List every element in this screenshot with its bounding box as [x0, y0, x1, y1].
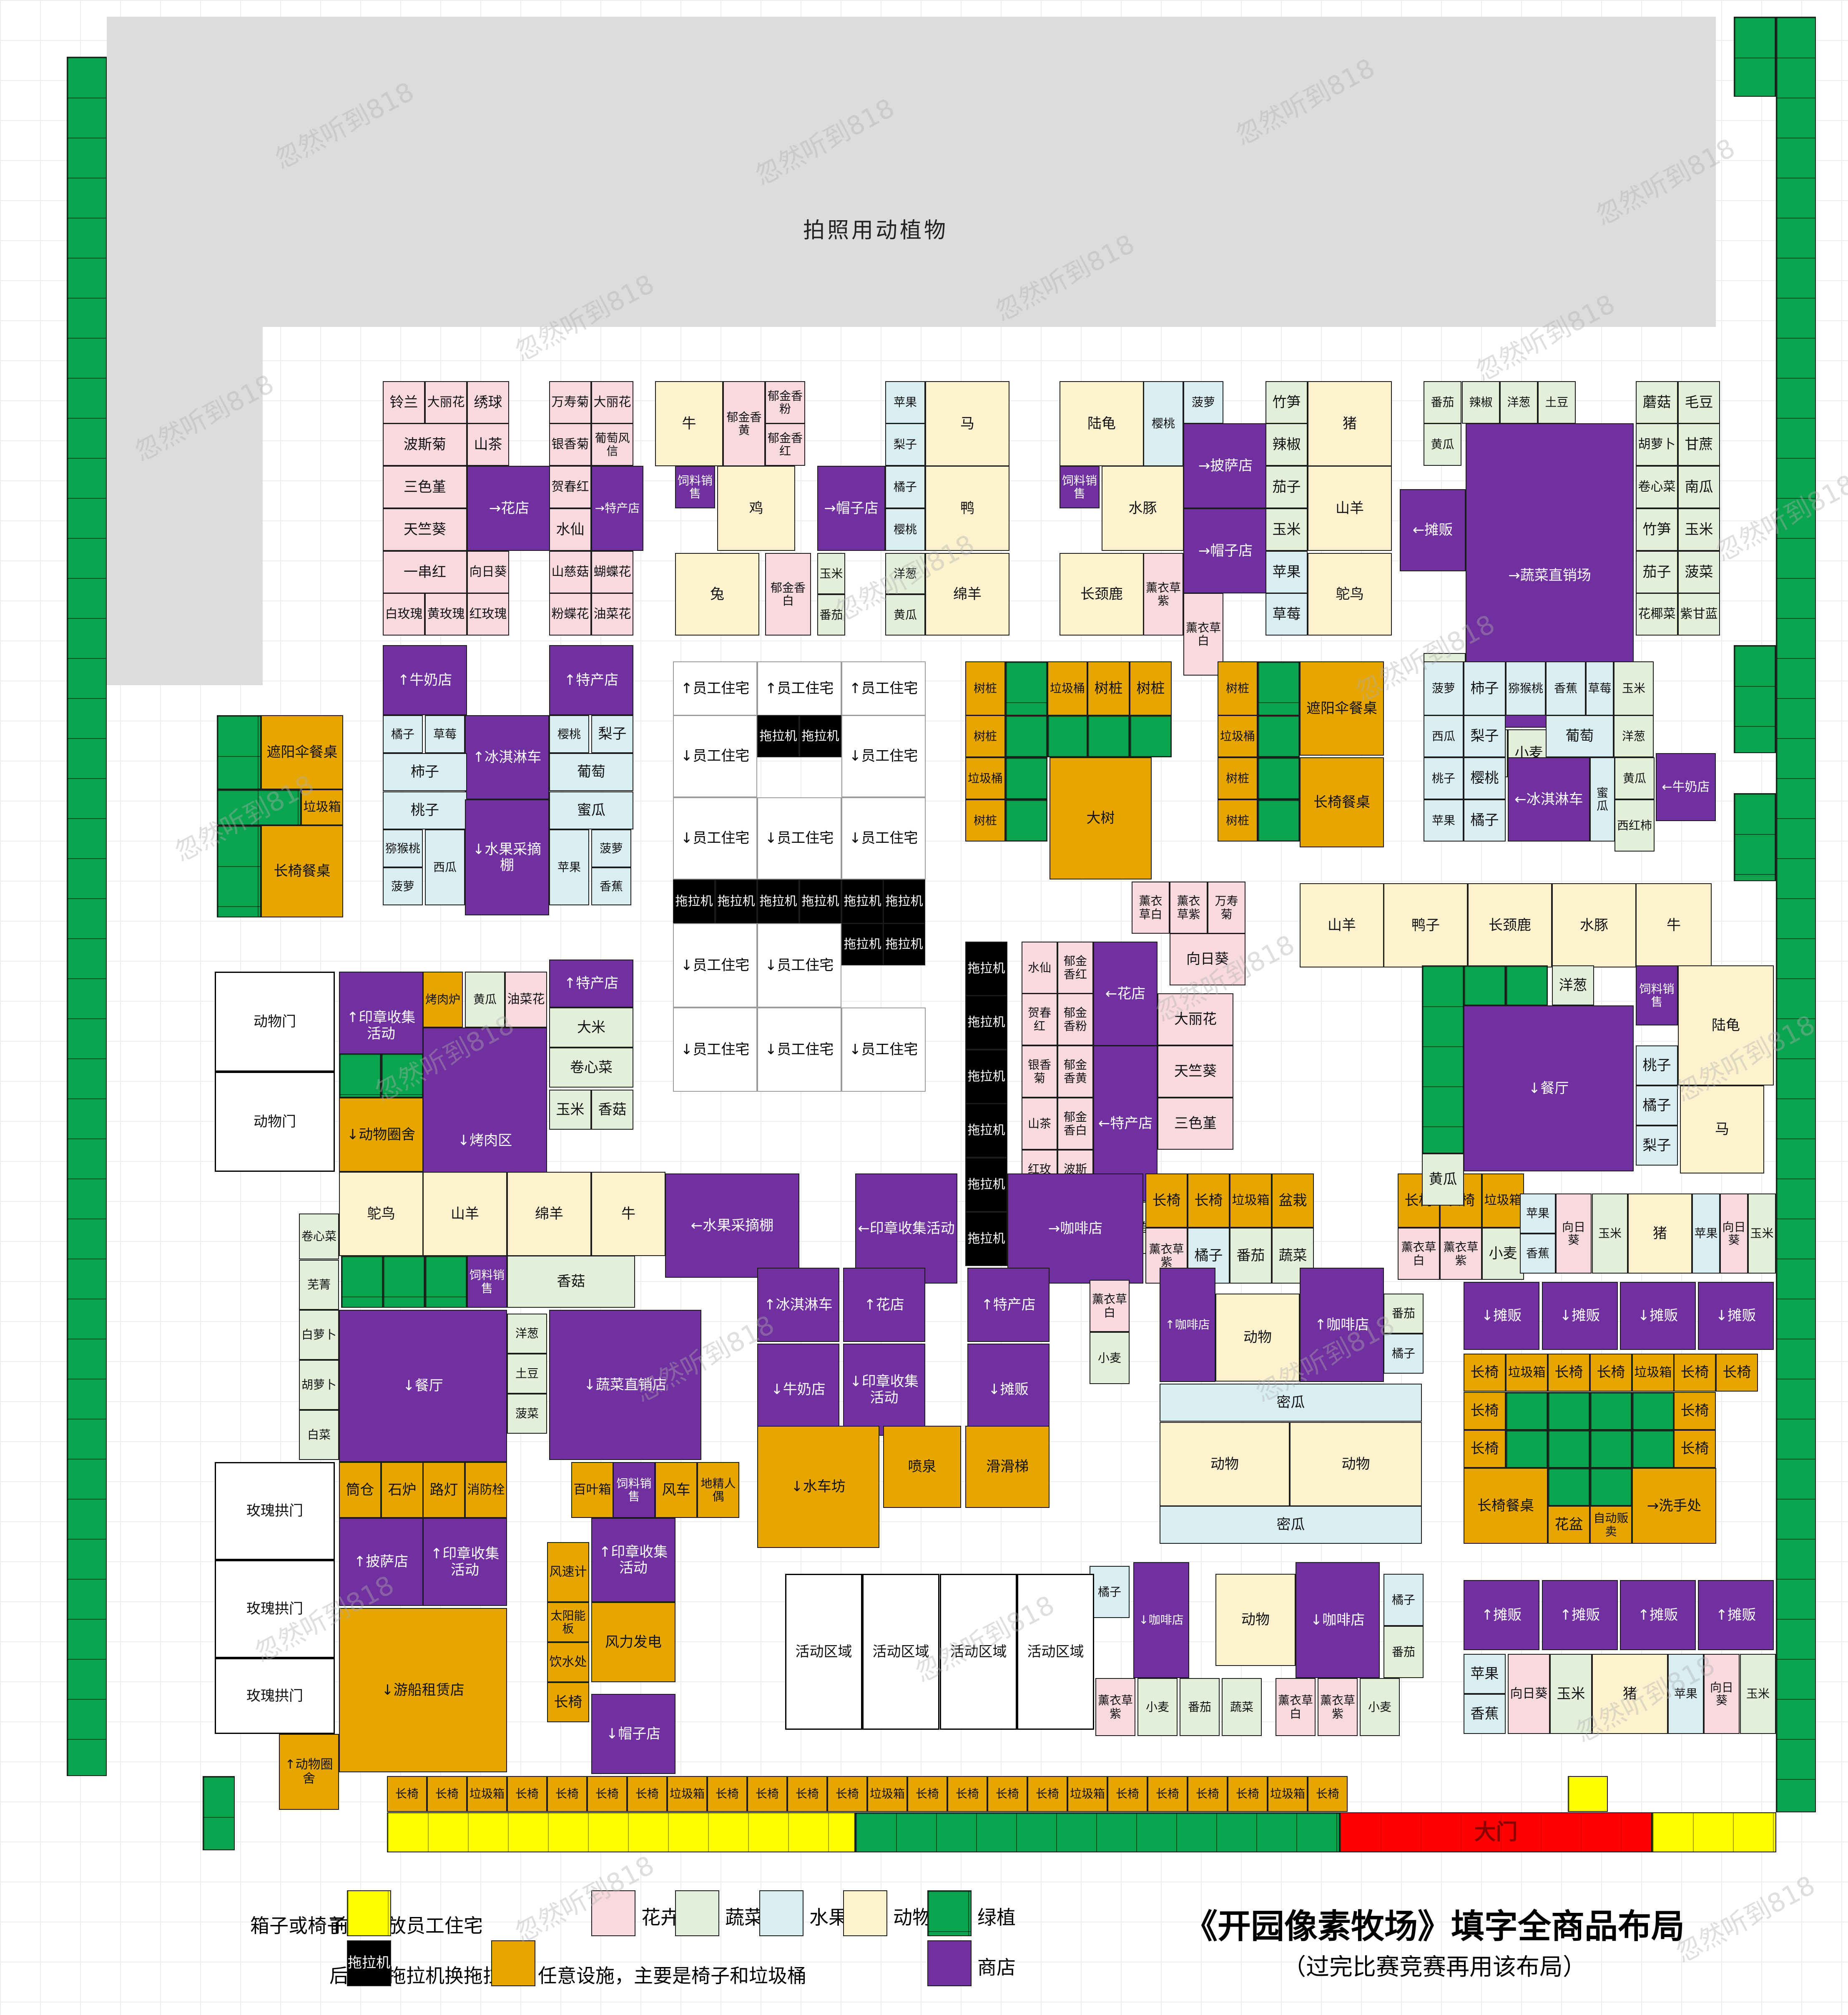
bench-cell: 长椅 [787, 1776, 827, 1812]
vegetable-cell: 黄瓜 [1422, 1153, 1464, 1206]
shop-cell: ↑摊贩 [1542, 1580, 1618, 1650]
vegetable-cell: 洋葱 [1500, 381, 1538, 424]
map-title: 《开园像素牧场》填字全商品布局 [1092, 1899, 1776, 1948]
greenery-cell [1632, 1392, 1674, 1430]
watermark: 忽然听到818 [507, 1844, 660, 1949]
flower-cell: 郁金香红 [1057, 942, 1093, 994]
bench-cell: 长椅 [707, 1776, 747, 1812]
flower-cell: 大丽花 [1158, 993, 1233, 1045]
vegetable-cell: 辣椒 [1462, 381, 1500, 424]
fruit-cell: 橘子 [1383, 1574, 1424, 1626]
tractor-cell: 拖拉机 [841, 923, 884, 965]
shop-cell: ↓摊贩 [1698, 1282, 1774, 1350]
vegetable-cell: 茄子 [1636, 551, 1678, 593]
facility-cell: 树桩 [1218, 757, 1258, 799]
fruit-cell: 葡萄 [1546, 715, 1614, 757]
fruit-cell: 苹果 [1668, 1654, 1704, 1734]
vegetable-cell: 洋葱 [885, 553, 925, 594]
fruit-cell: 苹果 [1464, 1654, 1506, 1694]
bench-cell: 长椅 [427, 1776, 467, 1812]
tractor-cell: 拖拉机 [965, 1050, 1007, 1104]
gate-cell: 大门 [1340, 1812, 1652, 1852]
fruit-cell: 桃子 [1636, 1045, 1678, 1085]
vegetable-cell: 玉米 [1740, 1654, 1776, 1734]
vegetable-cell: 香菇 [591, 1090, 633, 1130]
flower-cell: 天竺葵 [1158, 1045, 1233, 1098]
shop-cell: ↓摊贩 [967, 1344, 1050, 1436]
area-cell: 动物门 [215, 972, 335, 1072]
bench-cell: 长椅 [1308, 1776, 1348, 1812]
legend-swatch-flower-cell [591, 1890, 635, 1936]
animal-cell: 陆龟 [1060, 381, 1144, 466]
animal-cell: 马 [925, 381, 1009, 466]
vegetable-cell: 玉米 [1748, 1193, 1776, 1274]
vegetable-cell: 玉米 [1265, 508, 1308, 551]
animal-cell: 长颈鹿 [1060, 553, 1144, 636]
facility-cell: 垃圾桶 [965, 757, 1005, 799]
facility-cell: 长椅 [1145, 1173, 1188, 1228]
area-cell: 活动区域 [1017, 1574, 1094, 1730]
shop-cell: ↑摊贩 [1620, 1580, 1696, 1650]
tractor-cell: 拖拉机 [883, 879, 925, 924]
greenery-cell [1590, 1430, 1632, 1468]
bench-cell: 长椅 [627, 1776, 667, 1812]
vegetable-cell: 茄子 [1265, 466, 1308, 508]
animal-cell: 水豚 [1102, 466, 1184, 551]
shop-cell: ←水果采摘棚 [665, 1173, 799, 1278]
housing-cell: ↓员工住宅 [673, 1008, 757, 1092]
facility-cell: 大树 [1050, 757, 1152, 879]
shop-cell: ↑冰淇淋车 [465, 715, 549, 799]
fruit-cell: 苹果 [549, 829, 589, 905]
vegetable-cell: 土豆 [1538, 381, 1576, 424]
tractor-cell: 拖拉机 [965, 995, 1007, 1050]
facility-cell: 垃圾箱 [1506, 1354, 1548, 1392]
animal-cell: 牛 [1636, 883, 1712, 967]
trashbin-cell: 垃圾箱 [467, 1776, 507, 1812]
housing-cell: ↓员工住宅 [841, 715, 926, 797]
fruit-cell: 草莓 [425, 715, 465, 753]
fruit-cell: 苹果 [1265, 551, 1308, 593]
facility-cell: 饮水处 [547, 1642, 589, 1682]
vegetable-cell: 辣椒 [1265, 423, 1308, 466]
fruit-cell: 香蕉 [591, 867, 631, 905]
facility-cell: 遮阳伞餐桌 [1300, 661, 1384, 756]
area-cell: 活动区域 [940, 1574, 1017, 1730]
greenery-border [203, 1776, 235, 1850]
shop-cell: 饲料销售 [1060, 466, 1100, 508]
animal-cell: 猪 [1308, 381, 1392, 466]
vegetable-cell: 玉米 [1678, 508, 1720, 551]
facility-cell: 长椅 [1188, 1173, 1230, 1228]
shop-cell: ↑冰淇淋车 [757, 1268, 839, 1342]
greenery-cell [1548, 1392, 1590, 1430]
legend-label: 商店 [977, 1952, 1016, 1980]
flower-cell: 郁金香黄 [1057, 1045, 1093, 1098]
shop-cell: ↑牛奶店 [383, 645, 467, 715]
legend-label: 蔬菜 [725, 1902, 763, 1930]
fruit-cell: 菠萝 [591, 829, 631, 867]
flower-cell: 蝴蝶花 [591, 551, 633, 593]
greenery-border [1734, 793, 1776, 881]
shop-cell: ↑特产店 [549, 645, 633, 715]
facility-cell: 消防栓 [465, 1462, 507, 1518]
animal-cell: 绵羊 [507, 1172, 591, 1256]
flower-cell: 薰衣草白 [1398, 1228, 1440, 1280]
animal-cell: 猪 [1592, 1654, 1668, 1734]
flower-cell: 薰衣草紫 [1440, 1228, 1482, 1280]
flower-cell: 大丽花 [425, 381, 467, 424]
fruit-cell: 苹果 [1692, 1193, 1720, 1274]
legend-swatch-path-cell [347, 1890, 391, 1936]
greenery-cell [1005, 661, 1047, 716]
facility-cell: 树桩 [1218, 661, 1258, 716]
fruit-cell: 蜜瓜 [549, 791, 633, 829]
facility-cell: 长椅餐桌 [1464, 1468, 1548, 1544]
flower-cell: 水仙 [549, 508, 591, 551]
path-strip [1652, 1812, 1776, 1852]
legend-swatch-tractor-cell: 拖拉机 [347, 1940, 391, 1986]
flower-cell: 铃兰 [383, 381, 425, 424]
fruit-cell: 菠萝 [383, 867, 423, 905]
facility-cell: 盆栽 [1272, 1173, 1314, 1228]
shop-cell: ↓摊贩 [1620, 1282, 1696, 1350]
flower-cell: 水仙 [1022, 942, 1057, 994]
facility-cell: 长椅 [547, 1682, 589, 1722]
greenery-cell [1506, 965, 1548, 1005]
greenery-cell [1005, 757, 1047, 799]
bench-cell: 长椅 [1147, 1776, 1188, 1812]
flower-cell: 万寿菊 [549, 381, 591, 424]
greenery-cell [1258, 799, 1300, 842]
shop-cell: 饲料销售 [467, 1256, 507, 1308]
vegetable-cell: 花椰菜 [1636, 593, 1678, 636]
facility-cell: 地精人偶 [697, 1462, 739, 1518]
tractor-cell: 拖拉机 [965, 1212, 1007, 1266]
facility-cell: 长椅 [1674, 1392, 1716, 1430]
fruit-cell: 葡萄 [549, 753, 633, 791]
facility-cell: ↑动物圈舍 [279, 1734, 339, 1810]
greenery-border [67, 57, 107, 1776]
greenery-cell [1130, 715, 1172, 757]
greenery-border [1734, 645, 1776, 753]
shop-cell: →披萨店 [1183, 423, 1268, 508]
animal-cell: 鸵鸟 [339, 1172, 423, 1256]
flower-cell: 薰衣草紫 [1318, 1678, 1358, 1736]
greenery-cell [1506, 1430, 1548, 1468]
facility-cell: →洗手处 [1632, 1468, 1716, 1544]
animal-cell: 绵羊 [925, 553, 1009, 636]
vegetable-cell: 毛豆 [1678, 381, 1720, 424]
fruit-cell: 樱桃 [1143, 381, 1183, 466]
flower-cell: 薰衣草白 [1090, 1280, 1130, 1332]
greenery-cell [1548, 1468, 1590, 1506]
vegetable-cell: 紫甘蓝 [1678, 593, 1720, 636]
vegetable-cell: 黄瓜 [885, 594, 925, 636]
flower-cell: 山茶 [467, 423, 509, 466]
tractor-cell: 拖拉机 [673, 879, 715, 924]
flower-cell: 郁金香红 [765, 423, 805, 466]
area-cell: 动物门 [215, 1072, 335, 1172]
vegetable-cell: 芜菁 [299, 1260, 339, 1310]
greenery-cell [217, 789, 301, 825]
fruit-cell: 苹果 [1520, 1193, 1556, 1234]
legend-swatch-vegetable-cell [675, 1890, 719, 1936]
housing-cell: ↑员工住宅 [841, 661, 926, 716]
facility-cell: 长椅 [1674, 1430, 1716, 1468]
facility-cell: 树桩 [1087, 661, 1130, 716]
facility-cell: 长椅 [1674, 1354, 1716, 1392]
greenery-cell [381, 1053, 423, 1098]
vegetable-cell: 竹笋 [1265, 381, 1308, 424]
greenery-cell [425, 1256, 467, 1308]
vegetable-cell: 洋葱 [1614, 715, 1654, 757]
facility-cell: 垃圾箱 [1632, 1354, 1674, 1392]
fruit-cell: 西瓜 [1424, 715, 1464, 757]
shop-cell: ↑花店 [843, 1268, 925, 1342]
greenery-cell [1258, 757, 1300, 799]
facility-cell: 烤肉炉 [423, 972, 463, 1028]
shop-cell: ↑特产店 [967, 1268, 1050, 1342]
vegetable-cell: 洋葱 [1552, 965, 1594, 1005]
map-subtitle: （过完比赛竞赛再用该布局） [1092, 1948, 1776, 1982]
housing-cell: ↓员工住宅 [757, 1008, 841, 1092]
shop-cell: →花店 [467, 466, 551, 551]
vegetable-cell: 小麦 [1137, 1678, 1178, 1736]
flower-cell: 向日葵 [467, 551, 509, 593]
facility-cell: 树桩 [1218, 799, 1258, 842]
facility-cell: 滑滑梯 [965, 1426, 1050, 1508]
facility-cell: ↓游船租赁店 [339, 1608, 507, 1772]
shop-cell: ↓摊贩 [1542, 1282, 1618, 1350]
housing-cell: ↑员工住宅 [673, 661, 757, 716]
area-cell: 活动区域 [862, 1574, 939, 1730]
fruit-cell: 菠萝 [1424, 661, 1464, 716]
fruit-cell: 草莓 [1265, 593, 1308, 636]
housing-cell: ↓员工住宅 [757, 923, 841, 1008]
flower-cell: 薰衣草白 [1132, 882, 1170, 934]
fruit-cell: 猕猴桃 [1506, 661, 1546, 716]
fruit-cell: 苹果 [1424, 799, 1464, 842]
legend-swatch-greenery-cell [927, 1890, 972, 1936]
animal-cell: 兔 [675, 553, 759, 636]
facility-cell: 垃圾箱 [1230, 1173, 1272, 1228]
tractor-cell: 拖拉机 [965, 1103, 1007, 1158]
flower-cell: 薰衣草白 [1276, 1678, 1316, 1736]
greenery-cell [1506, 1392, 1548, 1430]
housing-cell: ↓员工住宅 [673, 715, 757, 797]
area-cell: 活动区域 [785, 1574, 862, 1730]
legend-swatch-fruit-cell [759, 1890, 803, 1936]
animal-cell: 牛 [591, 1172, 665, 1256]
vegetable-cell: 番茄 [1180, 1678, 1220, 1736]
vegetable-cell: 小麦 [1482, 1228, 1524, 1280]
flower-cell: 大丽花 [591, 381, 633, 424]
shop-cell: →特产店 [591, 466, 643, 551]
facility-cell: 树桩 [965, 661, 1005, 716]
bench-cell: 长椅 [987, 1776, 1027, 1812]
flower-cell: 向日葵 [1556, 1193, 1592, 1274]
vegetable-cell: 香菇 [507, 1256, 635, 1308]
facility-cell: 路灯 [423, 1462, 465, 1518]
trashbin-cell: 垃圾箱 [667, 1776, 707, 1812]
facility-cell: 百叶箱 [571, 1462, 613, 1518]
fruit-cell: 柿子 [383, 753, 467, 791]
shop-cell: ↓咖啡店 [1296, 1562, 1380, 1678]
animal-cell: 牛 [655, 381, 723, 466]
greenery-border [1734, 17, 1776, 97]
vegetable-cell: 胡萝卜 [1636, 423, 1678, 466]
tractor-cell: 拖拉机 [965, 942, 1007, 996]
vegetable-cell: 南瓜 [1678, 466, 1720, 508]
facility-cell: 遮阳伞餐桌 [261, 715, 343, 789]
vegetable-cell: 蔬菜 [1222, 1678, 1262, 1736]
fruit-cell: 香蕉 [1546, 661, 1586, 716]
shop-cell: →帽子店 [1183, 508, 1268, 593]
bench-cell: 长椅 [507, 1776, 547, 1812]
bench-cell: 长椅 [387, 1776, 427, 1812]
shop-cell: ←花店 [1093, 942, 1158, 1046]
shop-cell: ↓帽子店 [591, 1694, 675, 1774]
vegetable-cell: 玉米 [549, 1090, 591, 1130]
vegetable-cell: 菠菜 [507, 1394, 547, 1434]
flower-cell: 郁金香粉 [1057, 993, 1093, 1045]
tractor-cell: 拖拉机 [883, 923, 925, 965]
housing-cell: ↓员工住宅 [841, 1008, 926, 1092]
path-strip [387, 1812, 855, 1852]
flower-cell: 白玫瑰 [383, 593, 425, 636]
fruit-cell: 菠萝 [1183, 381, 1223, 424]
greenery-cell [1422, 965, 1464, 1153]
path-cell [1568, 1776, 1608, 1812]
greenery-cell [217, 715, 261, 789]
flower-cell: 山茶 [1022, 1098, 1057, 1150]
shop-cell: ↑咖啡店 [1300, 1268, 1384, 1382]
flower-cell: 一串红 [383, 551, 467, 593]
trashbin-cell: 垃圾箱 [1268, 1776, 1308, 1812]
housing-cell: ↑员工住宅 [757, 661, 841, 716]
animal-cell: 动物 [1215, 1294, 1300, 1382]
vegetable-cell: 卷心菜 [1636, 466, 1678, 508]
animal-cell: 动物 [1290, 1422, 1422, 1506]
greenery-cell [1590, 1468, 1632, 1506]
facility-cell: 树桩 [965, 715, 1005, 757]
vegetable-cell: 胡萝卜 [299, 1360, 339, 1410]
shop-cell: ↓蔬菜直销店 [549, 1310, 701, 1460]
animal-cell: 山羊 [1300, 883, 1384, 967]
facility-cell: 垃圾箱 [301, 789, 343, 825]
greenery-cell [341, 1256, 383, 1308]
animal-cell: 鸡 [717, 466, 795, 551]
vegetable-cell: 大米 [549, 1008, 633, 1048]
greenery-cell [1258, 661, 1300, 716]
shop-cell: ↓水果采摘棚 [465, 799, 549, 915]
vegetable-cell: 番茄 [817, 594, 845, 636]
fruit-cell: 橘子 [1383, 1334, 1424, 1374]
tractor-cell: 拖拉机 [757, 879, 799, 924]
facility-cell: 自动贩卖 [1590, 1506, 1632, 1544]
facility-cell: 风车 [655, 1462, 697, 1518]
greenery-cell [1548, 1430, 1590, 1468]
flower-cell: 郁金香黄 [723, 381, 765, 466]
fruit-cell: 西瓜 [425, 829, 465, 905]
greenery-cell [1258, 715, 1300, 757]
flower-cell: 三色堇 [383, 466, 467, 508]
vegetable-cell: 番茄 [1383, 1294, 1424, 1334]
facility-cell: 树桩 [965, 799, 1005, 842]
animal-cell: 动物 [1215, 1574, 1296, 1666]
legend-swatch-facility-cell [491, 1940, 535, 1986]
greenery-cell [1005, 799, 1047, 842]
fruit-cell: 梨子 [1636, 1126, 1678, 1166]
shop-cell: ↓印章收集活动 [843, 1344, 925, 1436]
flower-cell: 向日葵 [1720, 1193, 1748, 1274]
fruit-cell: 樱桃 [885, 508, 925, 551]
legend-label: 动物 [893, 1902, 932, 1930]
flower-cell: 向日葵 [1704, 1654, 1740, 1734]
animal-cell: 鸭子 [1383, 883, 1468, 967]
facility-cell: 长椅 [1716, 1354, 1758, 1392]
greenery-cell [1047, 715, 1087, 757]
vegetable-cell: 土豆 [507, 1354, 547, 1394]
shop-cell: 饲料销售 [1636, 965, 1678, 1025]
greenery-cell [1087, 715, 1130, 757]
fruit-cell: 桃子 [383, 791, 467, 829]
photo-area [107, 17, 1716, 327]
animal-cell: 陆龟 [1678, 965, 1774, 1085]
trashbin-cell: 垃圾箱 [867, 1776, 907, 1812]
animal-cell: 山羊 [1308, 466, 1392, 551]
animal-cell: 动物 [1160, 1422, 1290, 1506]
shop-cell: ↓餐厅 [339, 1310, 507, 1462]
bench-cell: 长椅 [547, 1776, 587, 1812]
shop-cell: ↑摊贩 [1464, 1580, 1539, 1650]
legend-swatch-shop-cell [927, 1940, 972, 1986]
bench-cell: 长椅 [1228, 1776, 1268, 1812]
greenery-cell [1632, 1430, 1674, 1468]
greenery-cell [217, 825, 261, 917]
facility-cell: 筒仓 [339, 1462, 381, 1518]
fruit-cell: 橘子 [383, 715, 423, 753]
fruit-cell: 樱桃 [549, 715, 589, 753]
housing-cell: ↓员工住宅 [757, 797, 841, 879]
vegetable-cell: 菠菜 [1678, 551, 1720, 593]
tractor-cell: 拖拉机 [799, 715, 841, 757]
vegetable-cell: 番茄 [1383, 1626, 1424, 1678]
fruit-cell: 梨子 [885, 423, 925, 466]
fruit-cell: 橘子 [1090, 1566, 1130, 1618]
fruit-cell: 桃子 [1424, 757, 1464, 799]
photo-area-label: 拍照用动植物 [688, 213, 1063, 244]
housing-cell: ↓员工住宅 [673, 797, 757, 879]
fruit-cell: 密瓜 [1160, 1384, 1422, 1422]
bench-cell: 长椅 [827, 1776, 867, 1812]
greenery-cell [383, 1256, 425, 1308]
flower-cell: 天竺葵 [383, 508, 467, 551]
flower-cell: 郁金香白 [1057, 1098, 1093, 1150]
facility-cell: 长椅 [1464, 1430, 1506, 1468]
facility-cell: 太阳能板 [547, 1602, 589, 1642]
facility-cell: 长椅 [1590, 1354, 1632, 1392]
bench-cell: 长椅 [1188, 1776, 1228, 1812]
vegetable-cell: 黄瓜 [1614, 757, 1655, 799]
fruit-cell: 蜜瓜 [1590, 757, 1615, 842]
shop-cell: ←冰淇淋车 [1508, 757, 1590, 842]
tractor-cell: 拖拉机 [965, 1158, 1007, 1212]
vegetable-cell: 玉米 [1592, 1193, 1628, 1274]
flower-cell: 郁金香粉 [765, 381, 805, 424]
farm-layout-map: 拍照用动植物 《开园像素牧场》填字全商品布局 （过完比赛竞赛再用该布局） 箱子或… [0, 0, 1848, 2015]
